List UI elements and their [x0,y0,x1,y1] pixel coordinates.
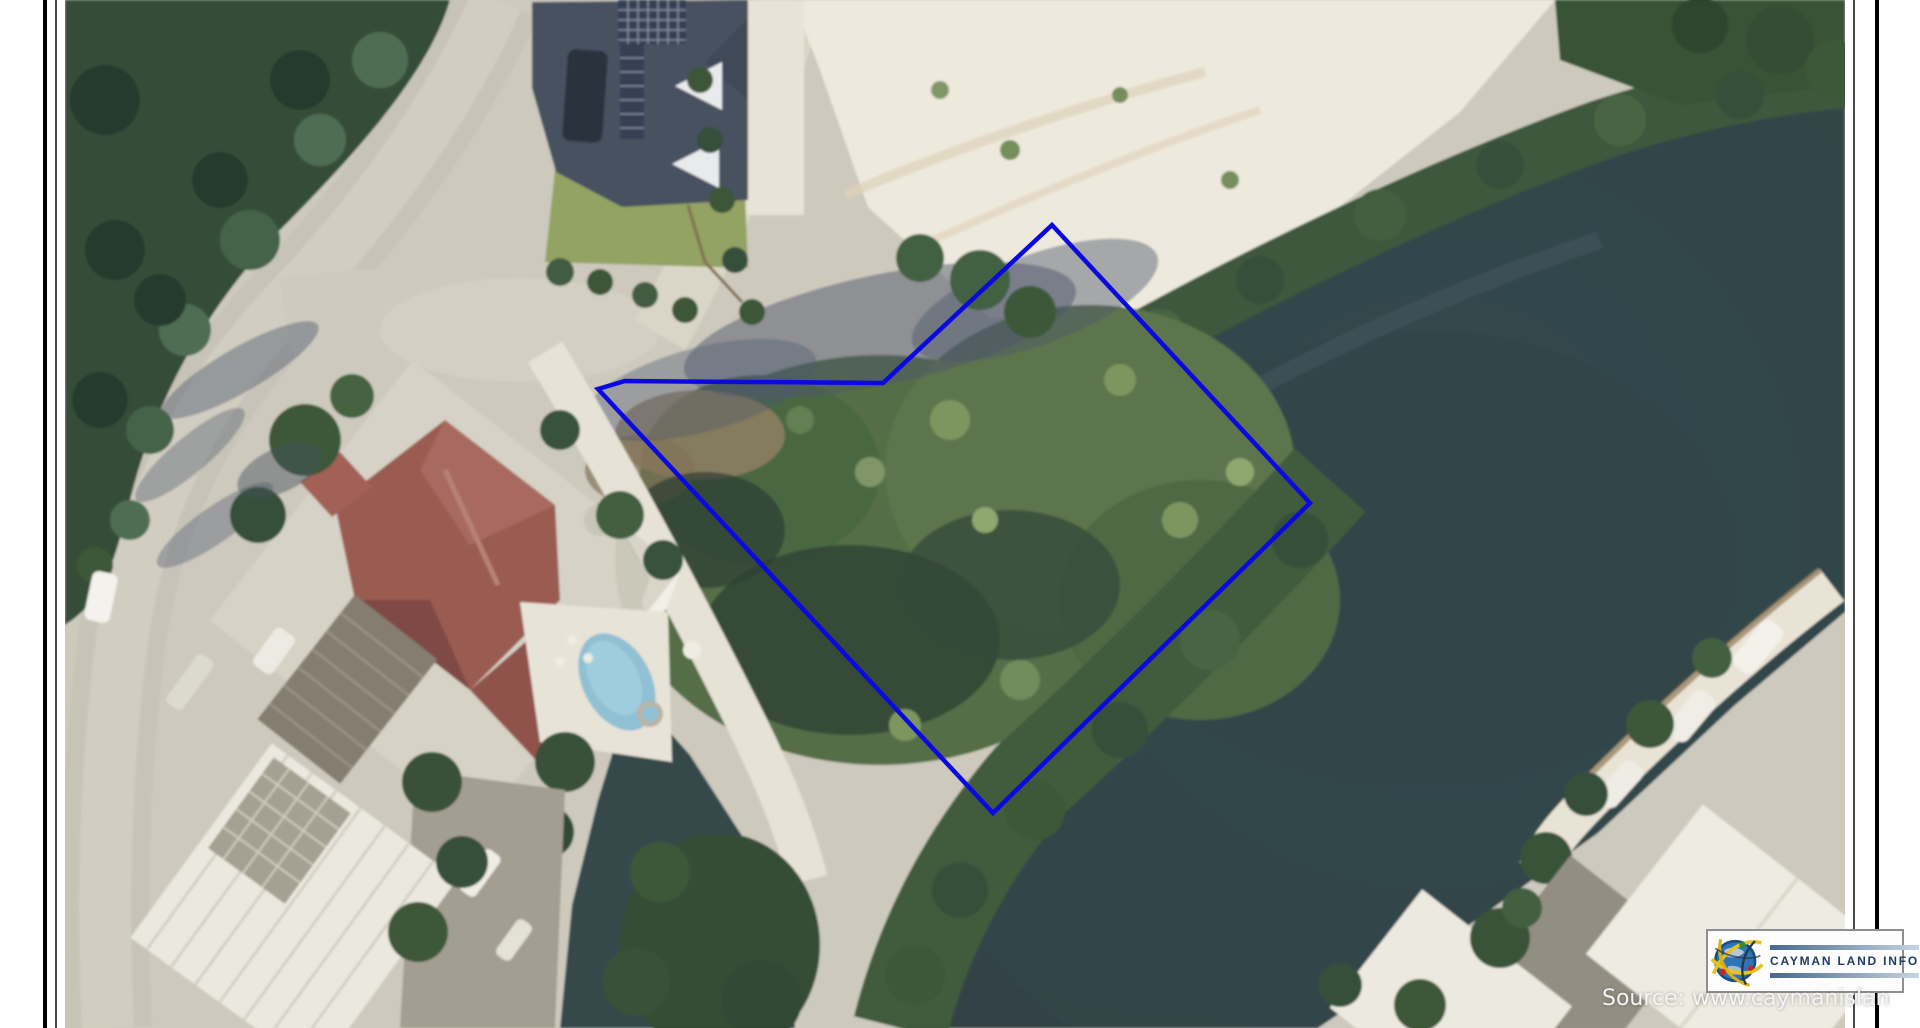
source-attribution: Source: www.caymanislandslandinfo.ky [1602,986,1890,1011]
frame-outer-border-right [1875,0,1879,1028]
logo-bar-bottom [1770,973,1919,978]
source-attribution-wrap: Source: www.caymanislandslandinfo.ky [1602,986,1890,1016]
logo-wordmark-block: CAYMAN LAND INFO [1770,945,1919,978]
frame-inner-border-left [55,0,57,1028]
frame-outer-border-left [43,0,47,1028]
cayman-land-info-logo: CAYMAN LAND INFO [1706,929,1904,993]
aerial-photo-canvas [65,0,1845,1028]
globe-swoosh-icon [1710,933,1764,989]
aerial-photo [65,0,1845,1028]
logo-wordmark: CAYMAN LAND INFO [1770,950,1919,973]
frame-inner-border-right [1853,0,1855,1028]
aerial-photo-scene [65,0,1845,1028]
